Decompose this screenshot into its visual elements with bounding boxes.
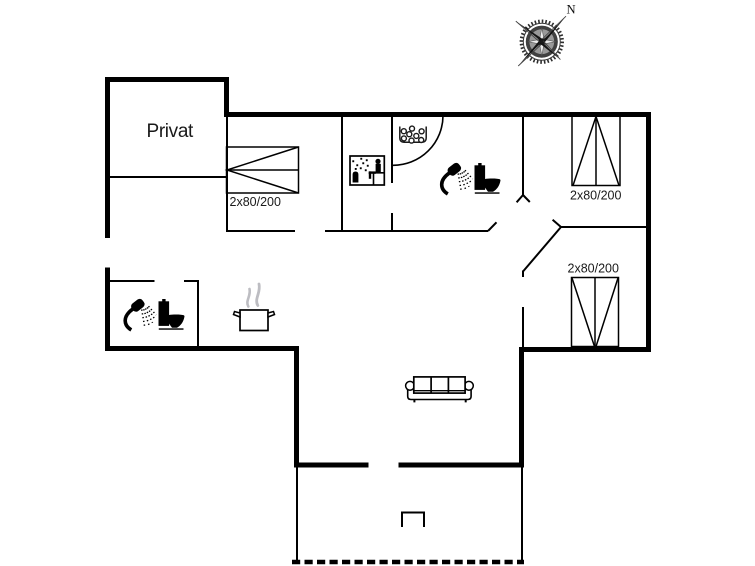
svg-text:2x80/200: 2x80/200: [570, 189, 621, 203]
svg-text:N: N: [567, 3, 576, 17]
svg-text:Privat: Privat: [147, 121, 195, 142]
svg-text:2x80/200: 2x80/200: [230, 195, 281, 209]
svg-text:2x80/200: 2x80/200: [568, 262, 619, 276]
